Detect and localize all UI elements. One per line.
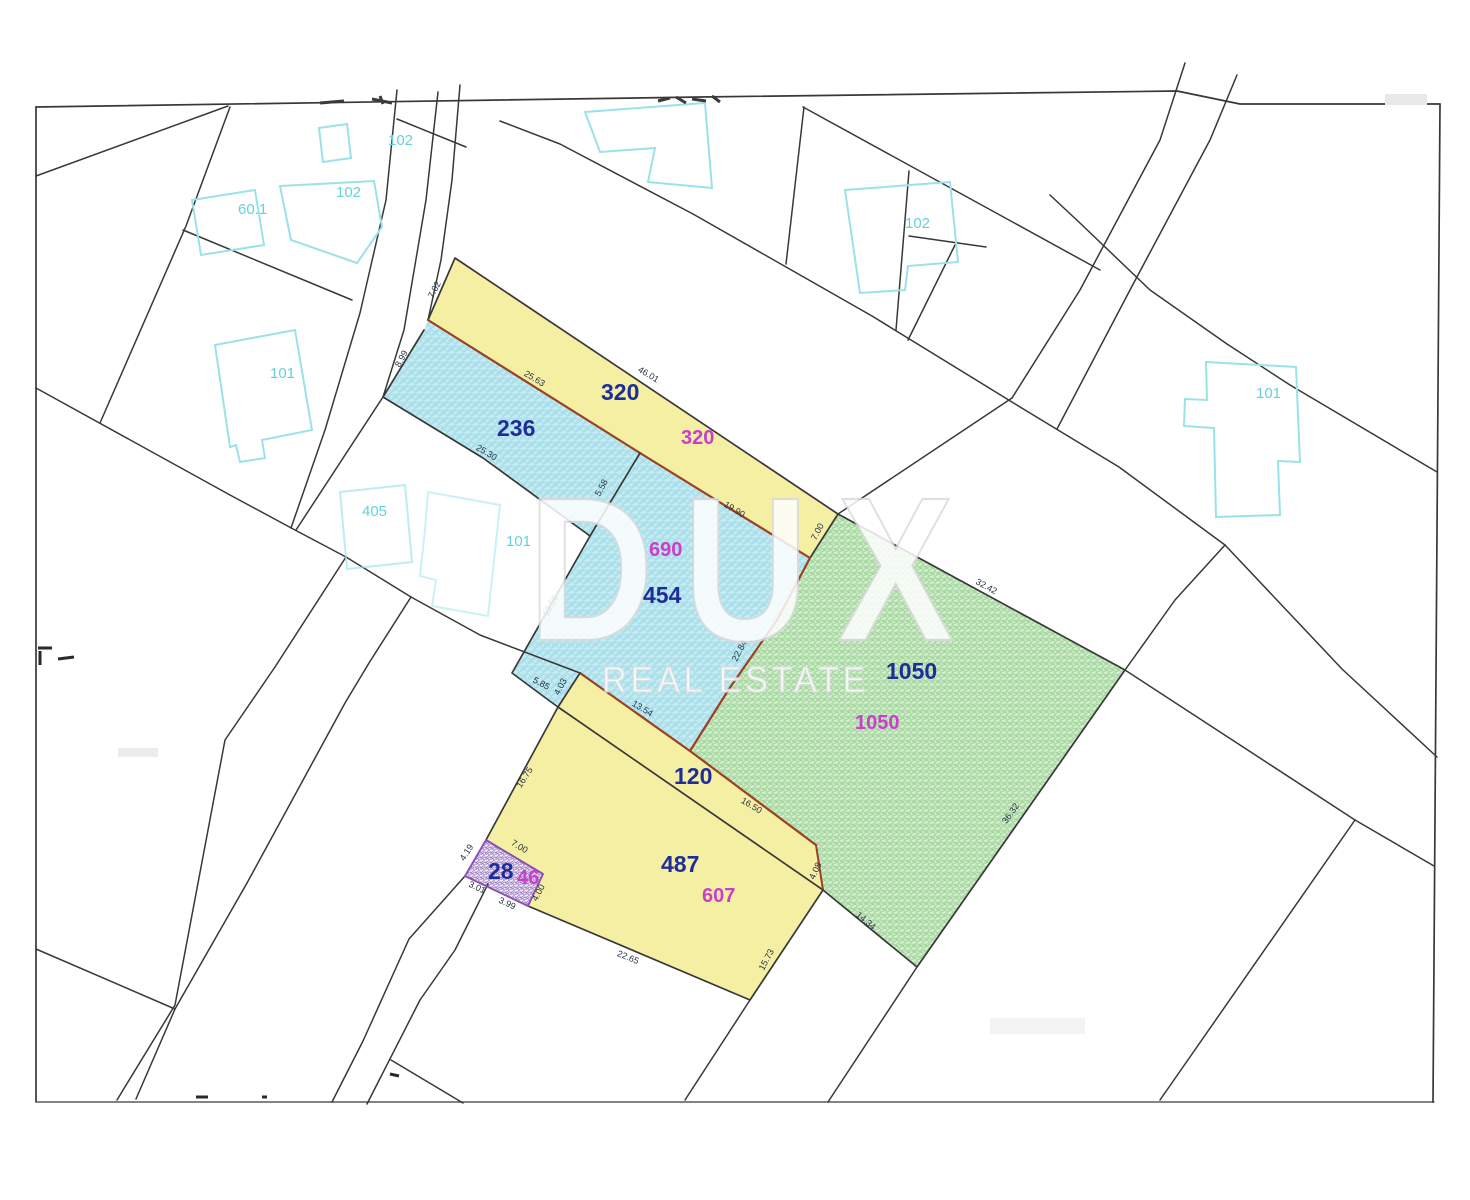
svg-text:101: 101 [270, 365, 295, 382]
svg-text:46: 46 [517, 867, 539, 889]
svg-text:DUX: DUX [528, 456, 983, 684]
svg-text:60.1: 60.1 [238, 201, 267, 218]
svg-text:28: 28 [488, 858, 514, 884]
svg-text:102: 102 [388, 132, 413, 149]
svg-text:487: 487 [661, 851, 699, 877]
svg-text:690: 690 [649, 539, 682, 561]
svg-text:102: 102 [336, 184, 361, 201]
svg-text:101: 101 [1256, 385, 1281, 402]
svg-text:320: 320 [601, 379, 639, 405]
svg-text:236: 236 [497, 415, 535, 441]
svg-text:454: 454 [643, 582, 682, 608]
svg-text:405: 405 [362, 503, 387, 520]
svg-text:320: 320 [681, 427, 714, 449]
svg-text:1050: 1050 [886, 658, 937, 684]
svg-text:REAL ESTATE: REAL ESTATE [602, 660, 869, 700]
svg-text:120: 120 [674, 763, 712, 789]
svg-text:102: 102 [905, 215, 930, 232]
svg-text:1050: 1050 [855, 712, 900, 734]
svg-text:607: 607 [702, 885, 735, 907]
